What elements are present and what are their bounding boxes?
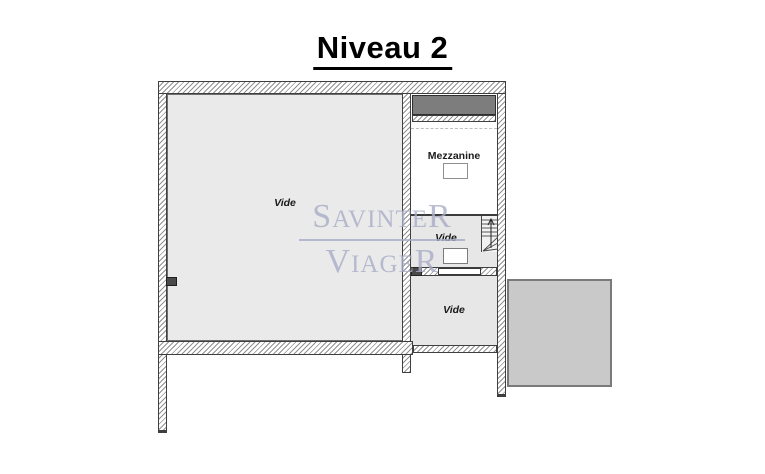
band-opening — [438, 268, 481, 275]
room-bottom-void: Vide — [411, 276, 497, 346]
terrace-area — [507, 279, 612, 387]
stairs-icon — [481, 216, 497, 252]
wall-right-endcap — [497, 394, 506, 397]
wall-bottom-main — [158, 341, 413, 355]
middle-room-opening — [443, 248, 468, 264]
wall-left-endcap — [158, 430, 167, 433]
wall-right — [497, 93, 506, 397]
room-label-vide-bottom: Vide — [411, 304, 497, 316]
room-label-vide-large: Vide — [168, 197, 402, 209]
mezzanine-solid-band — [412, 95, 496, 115]
band-end-square — [411, 267, 422, 276]
room-label-vide-middle: Vide — [411, 232, 481, 244]
mezzanine-square — [443, 163, 468, 179]
door-marker — [166, 277, 177, 286]
mezzanine-guide-line — [411, 128, 497, 129]
mezzanine-hatch-band — [412, 115, 496, 122]
page: { "title": "Niveau 2", "watermark": { "l… — [0, 0, 765, 474]
wall-left — [158, 93, 167, 433]
wall-divider — [402, 93, 411, 373]
stairs-up-arrow — [488, 219, 494, 248]
page-title: Niveau 2 — [313, 30, 453, 70]
wall-top — [158, 81, 506, 94]
wall-bottom-right — [413, 345, 497, 353]
room-label-mezzanine: Mezzanine — [411, 150, 497, 162]
room-large-void: Vide — [167, 94, 403, 341]
